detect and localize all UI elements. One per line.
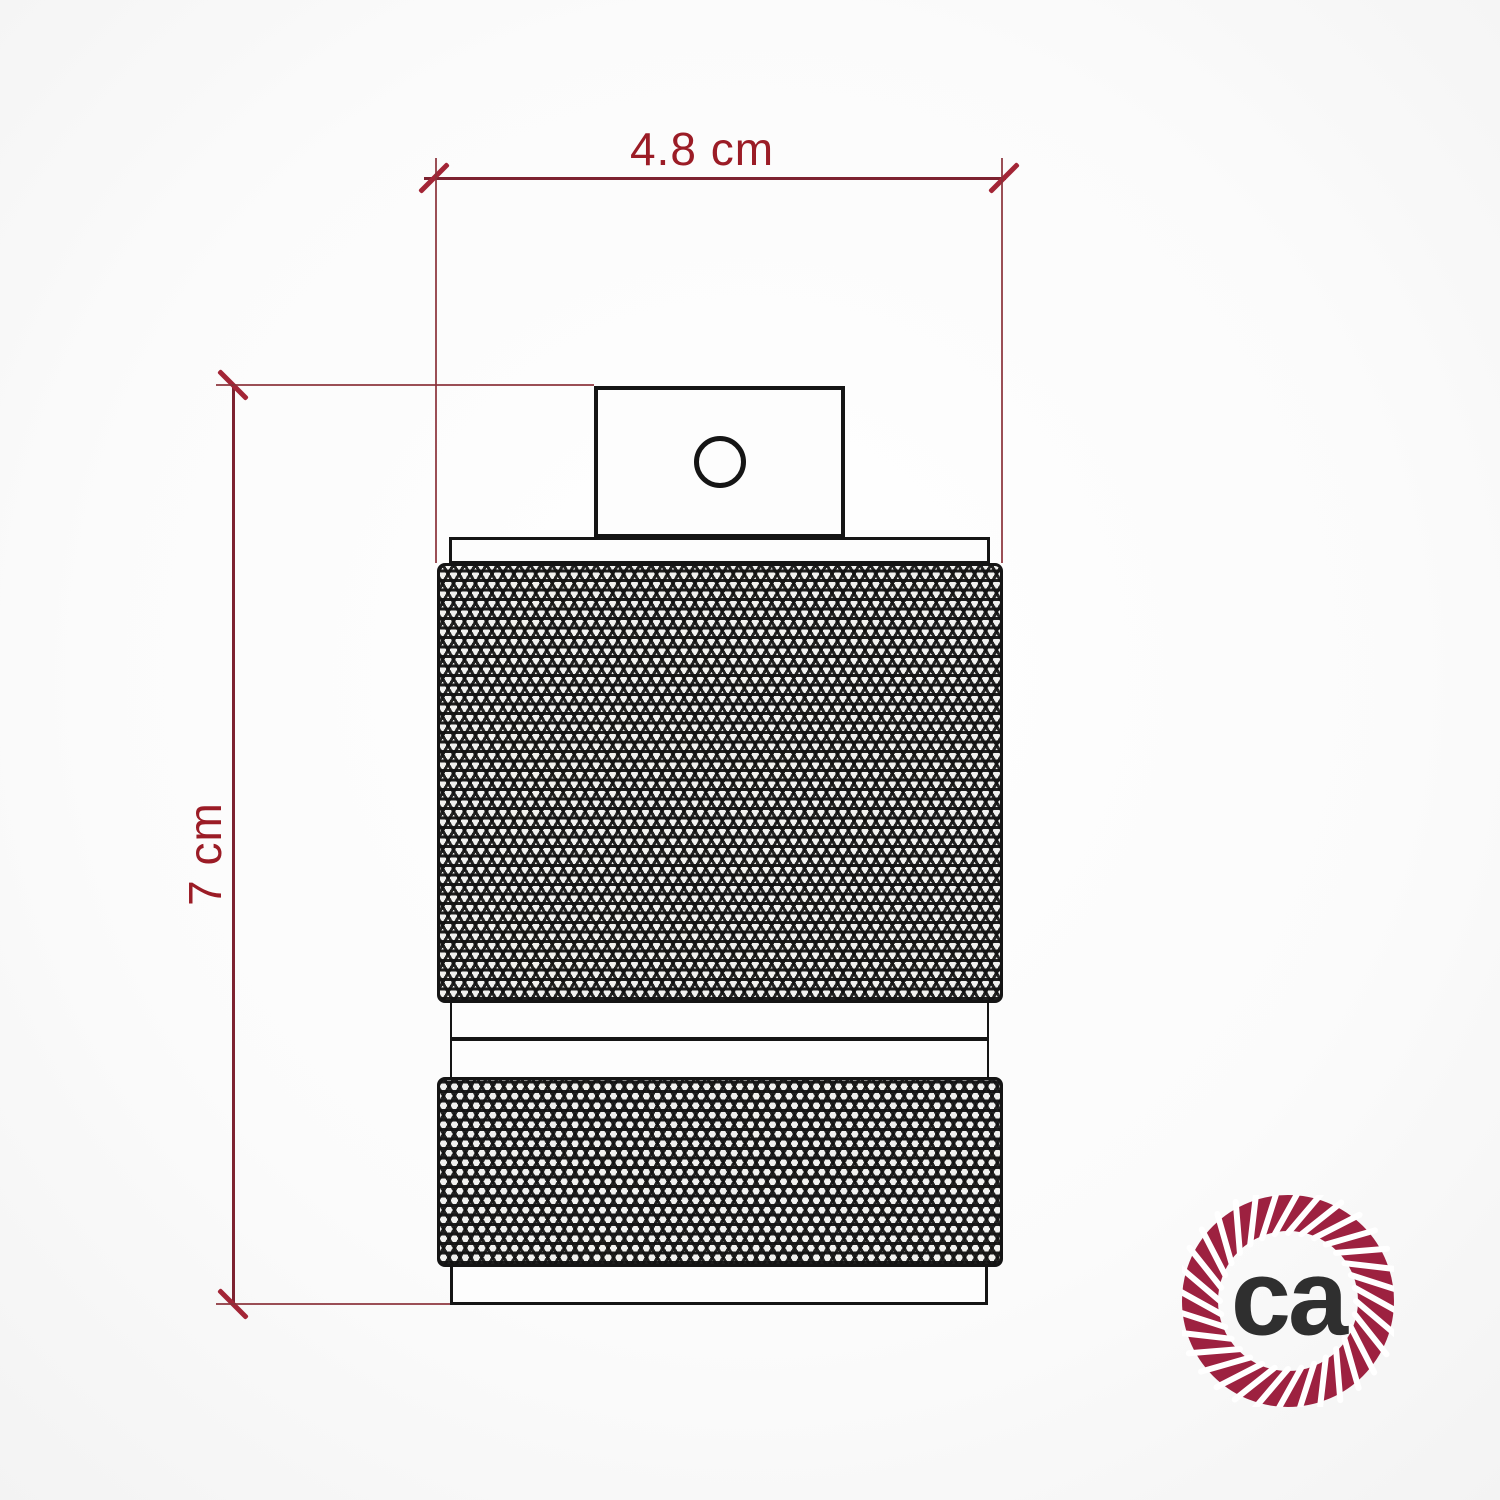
height-dimension-label: 7 cm (178, 802, 232, 906)
socket-top-plate (449, 537, 990, 564)
socket-bottom-collar (450, 1267, 988, 1305)
brand-logo-text: ca (1231, 1235, 1345, 1360)
extension-line-right (1001, 158, 1003, 563)
smooth-ring-lower (450, 1041, 989, 1078)
smooth-ring-upper (450, 1003, 989, 1041)
technical-drawing-page: 4.8 cm 7 cm ca (0, 0, 1500, 1500)
width-dimension-label: 4.8 cm (630, 122, 774, 176)
knurled-section-lower (437, 1077, 1003, 1267)
knurled-section-upper (437, 563, 1003, 1003)
extension-line-bottom (216, 1303, 455, 1305)
cap-cable-hole (694, 436, 746, 488)
width-dimension-line (424, 177, 1006, 180)
extension-line-left (435, 158, 437, 563)
height-dimension-line (232, 384, 235, 1305)
extension-line-top (216, 384, 594, 386)
